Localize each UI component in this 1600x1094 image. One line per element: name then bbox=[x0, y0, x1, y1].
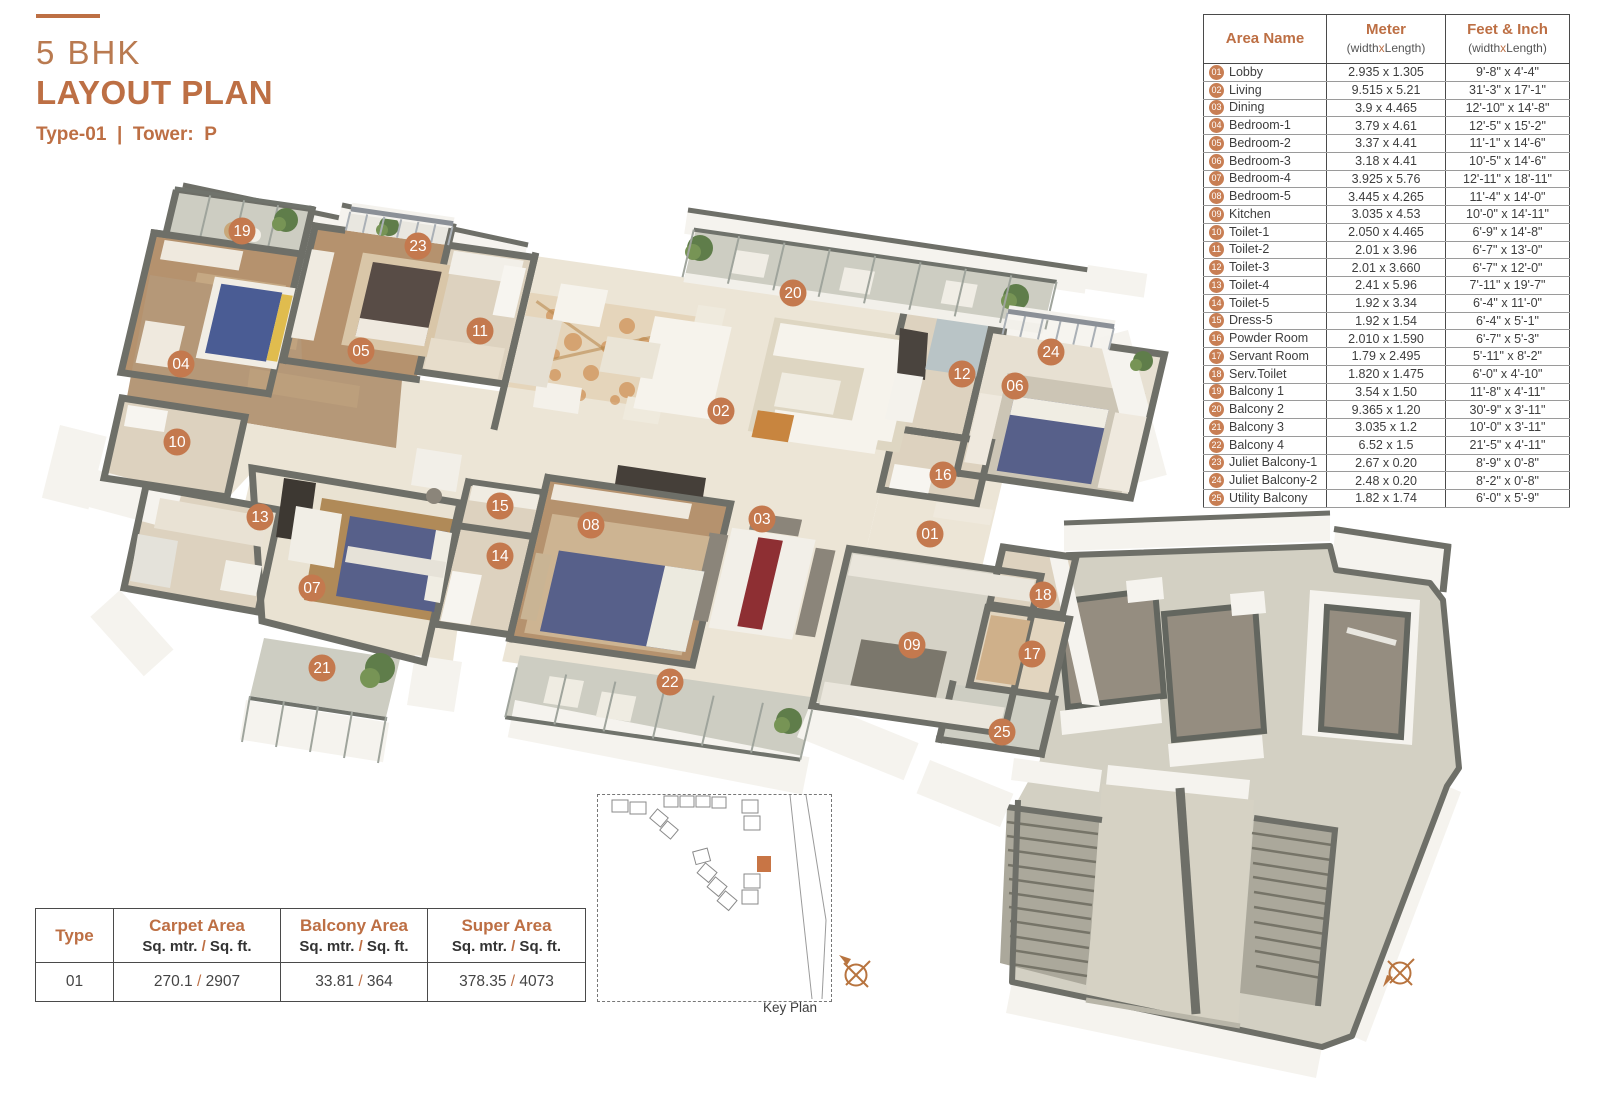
svg-text:10: 10 bbox=[168, 434, 186, 451]
svg-text:04: 04 bbox=[172, 356, 190, 373]
svg-text:19: 19 bbox=[233, 223, 250, 240]
svg-text:23: 23 bbox=[409, 238, 426, 255]
svg-text:20: 20 bbox=[784, 285, 802, 302]
svg-text:02: 02 bbox=[712, 403, 729, 420]
svg-text:05: 05 bbox=[352, 343, 369, 360]
svg-text:15: 15 bbox=[491, 498, 508, 515]
svg-text:18: 18 bbox=[1034, 587, 1051, 604]
svg-text:07: 07 bbox=[303, 580, 320, 597]
svg-text:21: 21 bbox=[313, 660, 330, 677]
svg-text:06: 06 bbox=[1006, 378, 1023, 395]
svg-text:11: 11 bbox=[472, 323, 488, 340]
svg-text:13: 13 bbox=[251, 509, 268, 526]
svg-text:01: 01 bbox=[921, 526, 938, 543]
svg-text:09: 09 bbox=[903, 637, 920, 654]
svg-text:12: 12 bbox=[953, 366, 970, 383]
svg-text:16: 16 bbox=[934, 467, 951, 484]
svg-text:08: 08 bbox=[582, 517, 599, 534]
svg-text:17: 17 bbox=[1023, 646, 1040, 663]
svg-text:14: 14 bbox=[491, 548, 509, 565]
svg-text:24: 24 bbox=[1042, 344, 1060, 361]
svg-text:22: 22 bbox=[661, 674, 678, 691]
svg-text:25: 25 bbox=[993, 724, 1010, 741]
svg-text:03: 03 bbox=[753, 511, 770, 528]
